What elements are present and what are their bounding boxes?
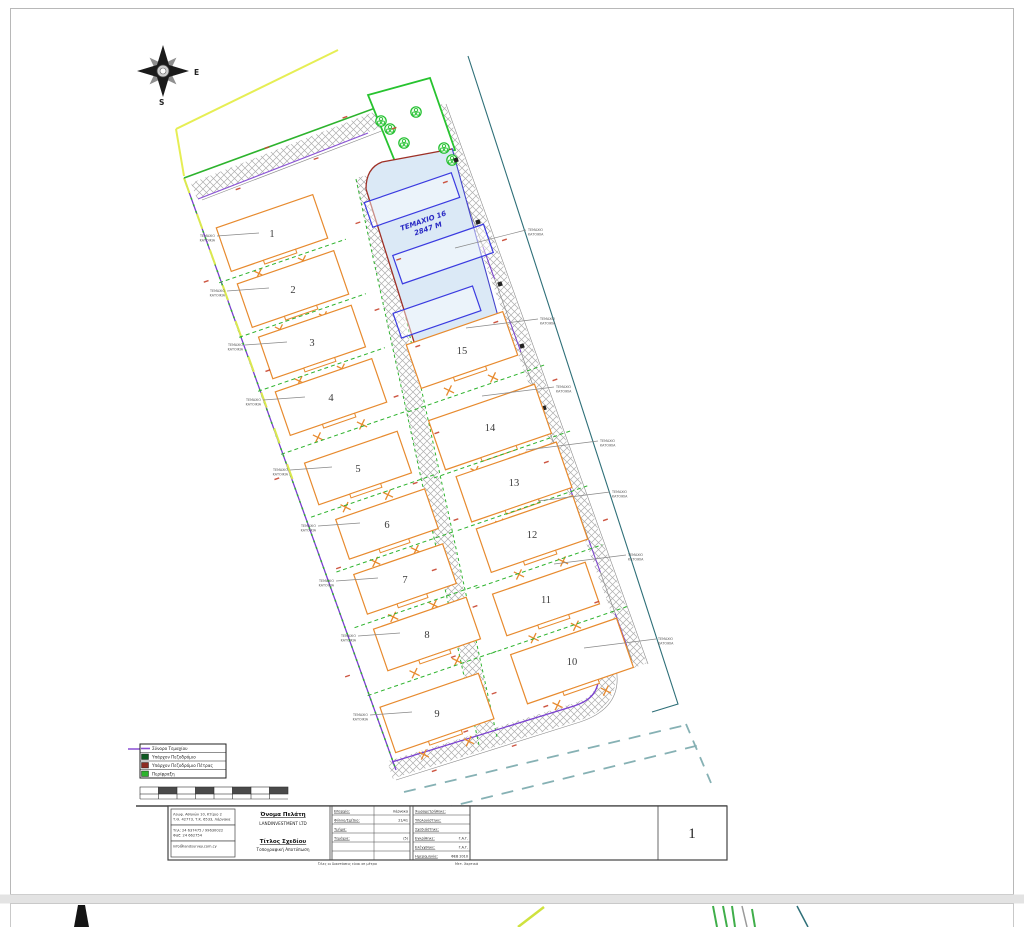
client-name: LANDINVESTMENT LTD xyxy=(259,821,307,826)
annotation-text: ΤΕΜΑΧΙΟ xyxy=(340,634,356,638)
annotation-text: ΚΑΤΟΙΚΙΑ xyxy=(612,495,628,499)
plot-number: 15 xyxy=(457,346,468,357)
field-label: Φύλλο/Σχέδιο: xyxy=(334,818,360,822)
sheet-number: 1 xyxy=(688,826,696,842)
annotation-text: ΤΕΜΑΧΙΟ xyxy=(300,524,316,528)
legend-label: Υπάρχον Πεζοδρόμιο Πέτρας xyxy=(151,763,214,768)
field-value: ΦΕΒ 2010 xyxy=(451,854,468,858)
annotation-text: ΚΑΤΟΙΚΙΑ xyxy=(246,403,262,407)
annotation-text: ΚΑΤΟΙΚΙΑ xyxy=(210,294,226,298)
annotation-text: ΚΑΤΟΙΚΙΑ xyxy=(228,348,244,352)
document-viewer[interactable]: E S xyxy=(0,0,1024,927)
tree-symbol xyxy=(376,116,386,126)
legend-label: Σύνορο Τεμαχίου xyxy=(152,746,188,751)
plot-number: 9 xyxy=(434,709,439,720)
annotation-text: ΤΕΜΑΧΙΟ xyxy=(272,468,288,472)
scale-segment xyxy=(196,787,215,794)
annotation-text: ΚΑΤΟΙΚΙΑ xyxy=(556,390,572,394)
tree-symbol xyxy=(399,138,409,148)
compass-hub-inner xyxy=(160,68,166,74)
annotation-text: ΤΕΜΑΧΙΟ xyxy=(627,553,643,557)
annotation-text: ΤΕΜΑΧΙΟ xyxy=(209,289,225,293)
field-label: Υπολογίστηκε: xyxy=(415,818,441,822)
tree-symbol xyxy=(411,107,421,117)
field-value: Λάρνακα xyxy=(393,809,409,813)
contact-line: info@landsurvey.com.cy xyxy=(173,845,218,849)
legend-swatch xyxy=(142,771,149,777)
plot-number: 13 xyxy=(509,478,520,489)
plot-number: 7 xyxy=(402,575,407,586)
annotation-text: ΤΕΜΑΧΙΟ xyxy=(227,343,243,347)
scale-segment xyxy=(159,787,178,794)
scale-segment xyxy=(233,787,252,794)
field-value: 21/41 xyxy=(398,818,408,822)
annotation-text: ΤΕΜΑΧΙΟ xyxy=(599,439,615,443)
contact-cells: Λεωφ. Αθηνών 10, Κτίριο 2Τ.Θ. 42773, Τ.Κ… xyxy=(171,809,235,857)
contact-cell xyxy=(171,841,235,857)
annotation-text: ΤΕΜΑΧΙΟ xyxy=(318,579,334,583)
annotation-text: ΤΕΜΑΧΙΟ xyxy=(245,398,261,402)
plot-number: 10 xyxy=(567,657,578,668)
annotation-text: ΚΑΤΟΙΚΙΑ xyxy=(200,239,216,243)
annotation-text: ΚΑΤΟΙΚΙΑ xyxy=(353,718,369,722)
field-label: Ελέγχθηκε: xyxy=(415,845,435,849)
annotation-text: ΚΑΤΟΙΚΙΑ xyxy=(600,444,616,448)
field-label: Τμήμα: xyxy=(333,827,347,831)
annotation-text: ΚΑΤΟΙΚΙΑ xyxy=(341,639,357,643)
plot-number: 8 xyxy=(424,630,429,641)
plot-number: 1 xyxy=(269,229,274,240)
annotation-text: ΚΑΤΟΙΚΙΑ xyxy=(301,529,317,533)
footnote-left: Όλες οι διαστάσεις είναι σε μέτρα xyxy=(317,862,378,866)
scale-segment xyxy=(214,787,233,794)
contact-line: Τηλ: 24 637475 / 99630022 xyxy=(172,829,223,833)
annotation-text: ΚΑΤΟΙΚΙΑ xyxy=(658,642,674,646)
drawing-title-label: Τίτλος Σχεδίου xyxy=(260,838,307,845)
plot-number: 12 xyxy=(527,530,538,541)
compass-east-label: E xyxy=(194,68,199,77)
annotation-text: ΚΑΤΟΙΚΙΑ xyxy=(540,322,556,326)
page-2 xyxy=(11,904,1014,927)
field-label: Εγκρίθηκε: xyxy=(415,836,435,840)
contact-line: Φαξ: 24 662754 xyxy=(173,834,203,838)
footnote-right: Μετ. Χαρτικά xyxy=(455,862,479,866)
legend-label: Περίφραξη xyxy=(152,772,175,777)
annotation-text: ΤΕΜΑΧΙΟ xyxy=(611,490,627,494)
field-value: Γ.Α.Γ. xyxy=(459,836,468,840)
page-gap xyxy=(0,895,1024,904)
annotation-text: ΚΑΤΟΙΚΙΑ xyxy=(319,584,335,588)
plot-number: 5 xyxy=(355,464,360,475)
tree-symbol xyxy=(439,143,449,153)
annotation-text: ΤΕΜΑΧΙΟ xyxy=(199,234,215,238)
scale-segment xyxy=(177,787,196,794)
contact-line: Τ.Θ. 42773, Τ.Κ. 6533, Λάρνακα xyxy=(172,818,231,822)
field-label: Τεμάχια: xyxy=(333,836,350,840)
annotation-text: ΤΕΜΑΧΙΟ xyxy=(657,637,673,641)
legend: Σύνορο ΤεμαχίουΥπάρχον ΠεζοδρόμιοΥπάρχον… xyxy=(128,744,226,778)
annotation-text: ΤΕΜΑΧΙΟ xyxy=(555,385,571,389)
drawing-title-value: Τοπογραφική Αποτύπωση xyxy=(256,847,310,852)
annotation-text: ΚΑΤΟΙΚΙΑ xyxy=(528,233,544,237)
field-value: (5) xyxy=(403,836,408,840)
legend-label: Υπάρχον Πεζοδρόμιο xyxy=(151,755,196,760)
scale-segment xyxy=(270,787,289,794)
field-value: Γ.Α.Γ. xyxy=(459,845,468,849)
field-label: Ημερομηνία: xyxy=(415,854,438,858)
annotation-text: ΤΕΜΑΧΙΟ xyxy=(527,228,543,232)
contact-line: Λεωφ. Αθηνών 10, Κτίριο 2 xyxy=(173,813,222,817)
legend-swatch xyxy=(142,754,149,760)
field-label: Χωρομετρήθηκε: xyxy=(415,809,446,813)
annotation-text: ΤΕΜΑΧΙΟ xyxy=(539,317,555,321)
field-label: Επαρχία: xyxy=(334,809,350,813)
client-label: Όνομα Πελάτη xyxy=(259,811,305,818)
plot-number: 11 xyxy=(541,595,551,606)
annotation-text: ΚΑΤΟΙΚΙΑ xyxy=(628,558,644,562)
legend-swatch xyxy=(142,763,149,769)
plot-number: 14 xyxy=(485,423,496,434)
title-block: Λεωφ. Αθηνών 10, Κτίριο 2Τ.Θ. 42773, Τ.Κ… xyxy=(136,806,727,866)
scale-segment xyxy=(140,787,159,794)
plot-number: 3 xyxy=(309,338,314,349)
plot-number: 4 xyxy=(328,393,334,404)
field-label: Σχεδιάστηκε: xyxy=(415,827,439,831)
plot-number: 2 xyxy=(290,285,295,296)
annotation-text: ΚΑΤΟΙΚΙΑ xyxy=(273,473,289,477)
annotation-text: ΤΕΜΑΧΙΟ xyxy=(352,713,368,717)
compass-south-label: S xyxy=(159,98,164,107)
scale-segment xyxy=(251,787,270,794)
plot-number: 6 xyxy=(384,520,389,531)
